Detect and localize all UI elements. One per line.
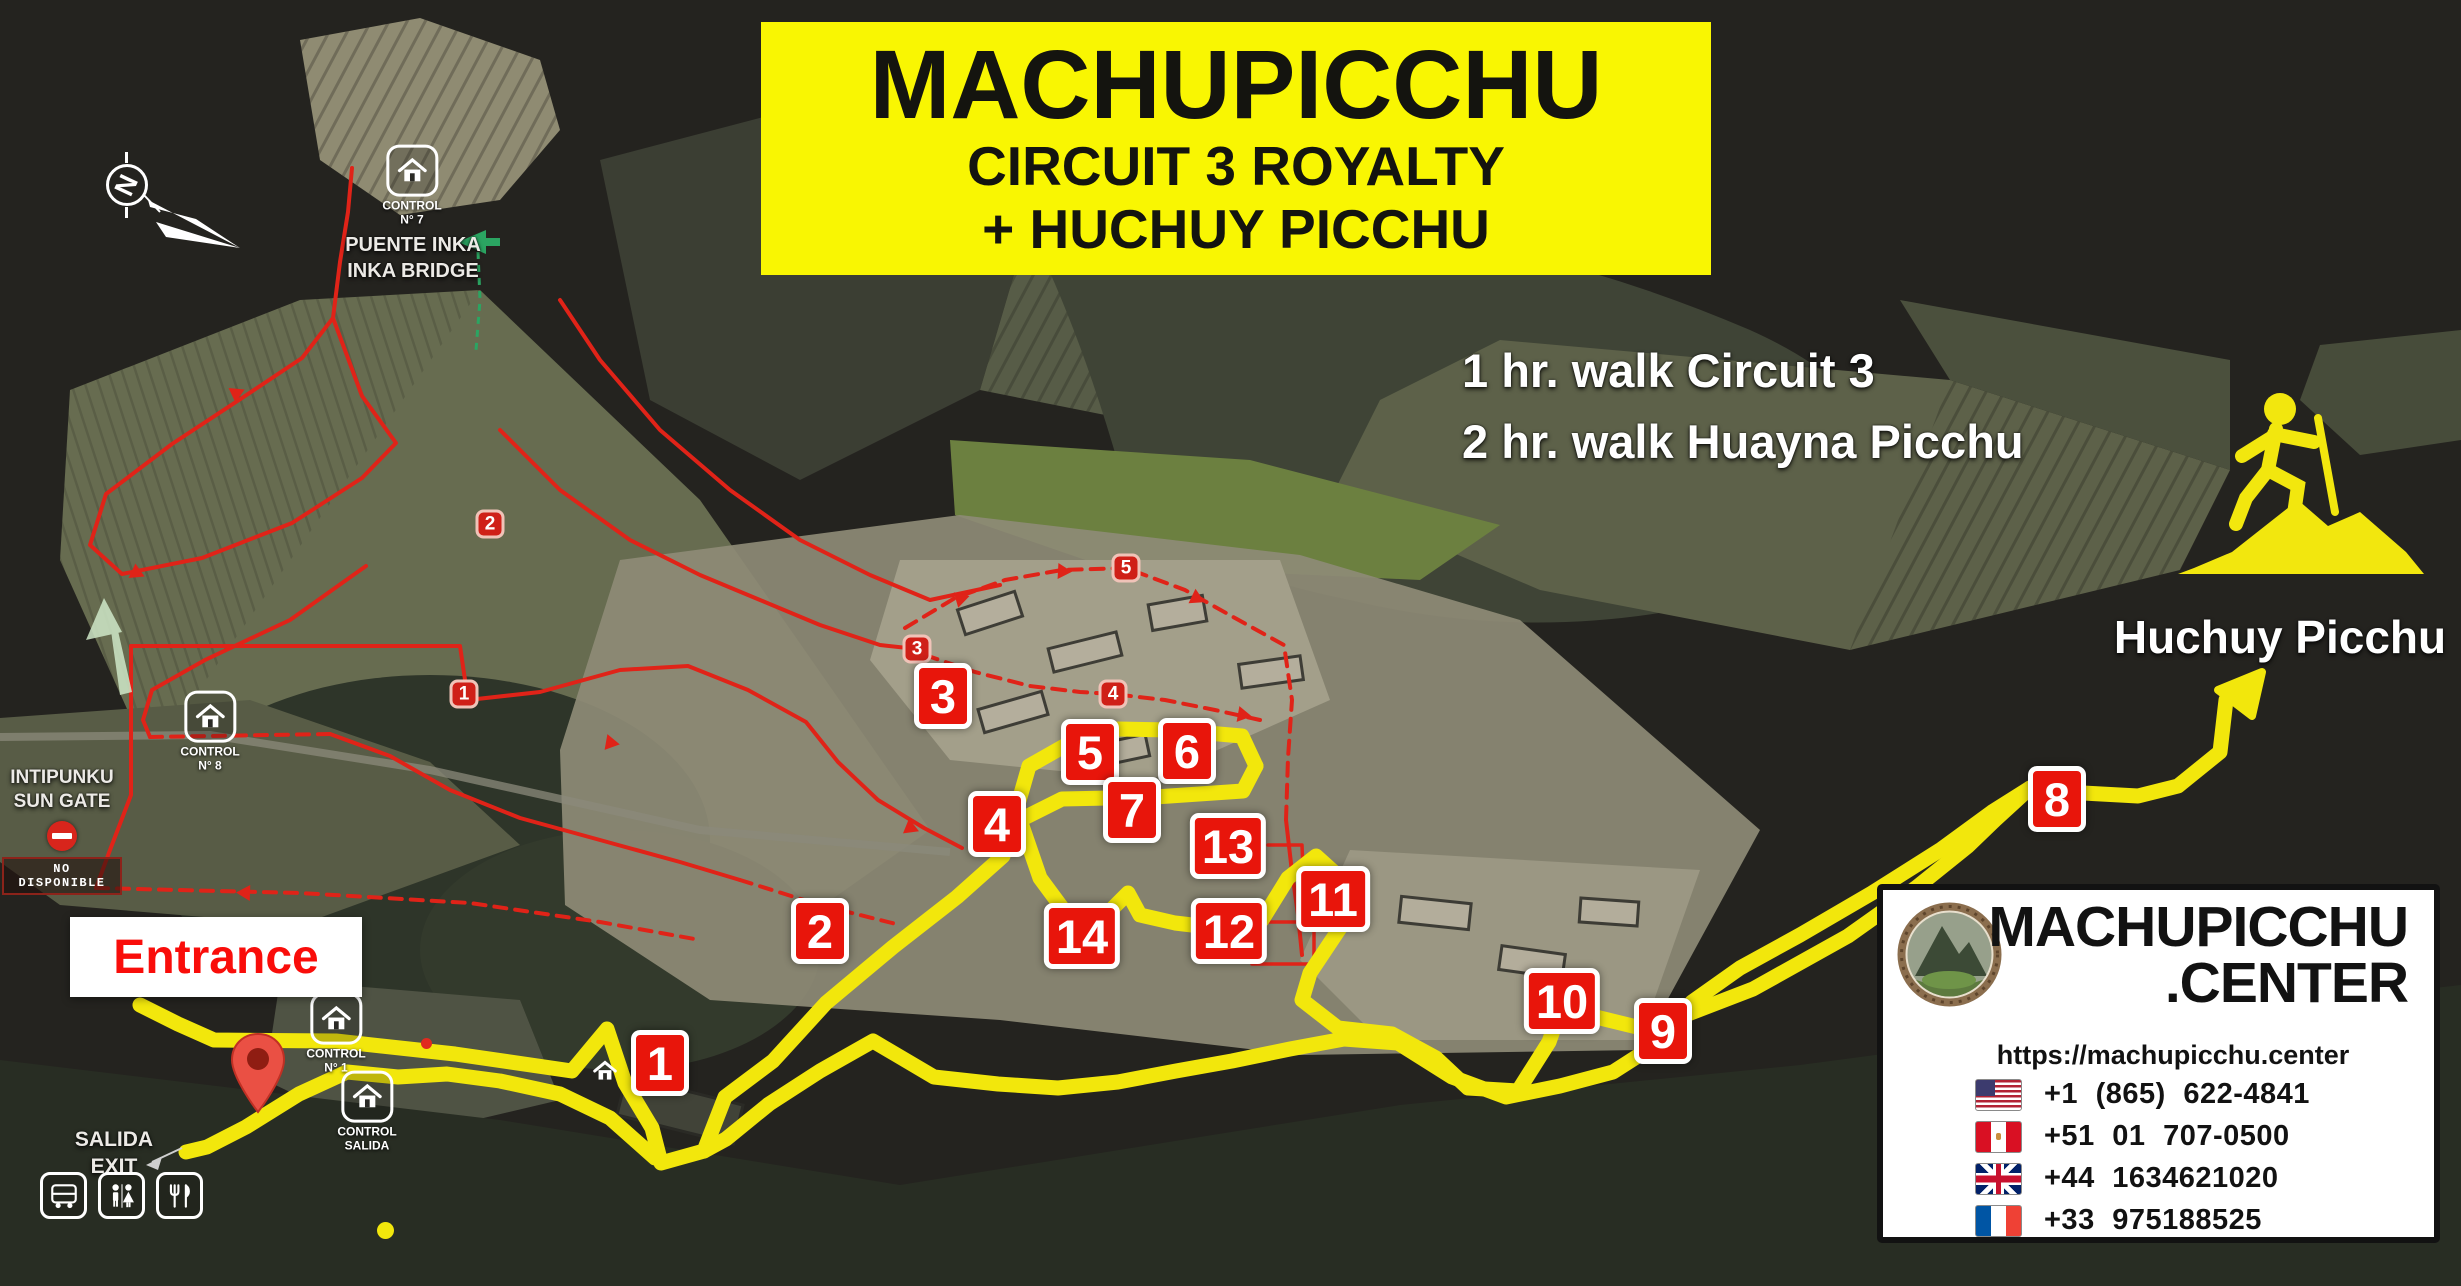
route-marker-5: 5 (1061, 719, 1119, 785)
france-flag-icon (1975, 1205, 2022, 1237)
phone-number-uk: +44 1634621020 (2044, 1162, 2279, 1195)
red-dot (421, 1038, 432, 1049)
brand-line2: .CENTER (1988, 956, 2408, 1012)
house-icon (592, 1059, 618, 1083)
phone-row-us: +1 (865) 622-4841 (1975, 1078, 2310, 1111)
control-number: N° 8 (198, 759, 221, 773)
inka-bridge-label-es: PUENTE INKA (318, 232, 508, 258)
machu-picchu-circuit-map: MACHUPICCHU CIRCUIT 3 ROYALTY + HUCHUY P… (0, 0, 2461, 1286)
phone-row-uk: +44 1634621020 (1975, 1162, 2310, 1195)
uk-flag-icon (1975, 1163, 2022, 1195)
brand-line1: MACHUPICCHU (1988, 900, 2408, 956)
website-url: https://machupicchu.center (1953, 1040, 2393, 1071)
huchuy-picchu-label: Huchuy Picchu (2100, 610, 2460, 664)
restaurant-icon (156, 1172, 203, 1219)
route-marker-2: 2 (791, 898, 849, 964)
house-icon (184, 691, 236, 743)
route-marker-9: 9 (1634, 998, 1692, 1064)
walk-line-circuit3: 1 hr. walk Circuit 3 (1462, 336, 2024, 407)
route-marker-12: 12 (1191, 898, 1267, 964)
peru-flag-icon (1975, 1121, 2022, 1153)
control-number: N° 7 (400, 213, 423, 227)
map-title: MACHUPICCHU (870, 36, 1603, 135)
no-entry-icon (47, 821, 77, 851)
entrance-label-box: Entrance (70, 917, 362, 997)
route-marker-4: 4 (968, 791, 1026, 857)
contact-card: MACHUPICCHU .CENTER https://machupicchu.… (1877, 884, 2440, 1243)
map-title-box: MACHUPICCHU CIRCUIT 3 ROYALTY + HUCHUY P… (761, 22, 1711, 275)
sun-gate-label-en: SUN GATE (2, 790, 122, 814)
route-marker-6: 6 (1158, 718, 1216, 784)
circuit-area-marker-4: 4 (1099, 680, 1128, 709)
entrance-label: Entrance (113, 930, 318, 985)
route-marker-8: 8 (2028, 766, 2086, 832)
walk-line-huayna: 2 hr. walk Huayna Picchu (1462, 407, 2024, 478)
phone-number-france: +33 975188525 (2044, 1204, 2262, 1237)
restroom-icon (98, 1172, 145, 1219)
exit-sign-salida: SALIDA (58, 1126, 170, 1153)
house-icon (386, 145, 438, 197)
circuit-area-marker-5: 5 (1112, 554, 1141, 583)
route-marker-7: 7 (1103, 777, 1161, 843)
walk-duration-info: 1 hr. walk Circuit 3 2 hr. walk Huayna P… (1462, 336, 2024, 477)
route-marker-13: 13 (1190, 813, 1266, 879)
circuit-area-marker-3: 3 (903, 635, 932, 664)
machupicchu-center-logo (1897, 902, 2002, 1007)
map-pin-icon (228, 1032, 288, 1116)
control-label: CONTROL (382, 199, 441, 213)
route-marker-11: 11 (1296, 866, 1370, 932)
brand-wordmark: MACHUPICCHU .CENTER (1988, 900, 2408, 1012)
compass-tick-bottom (125, 207, 128, 218)
yellow-dot (377, 1222, 394, 1239)
route-marker-10: 10 (1524, 968, 1600, 1034)
inka-bridge-label: PUENTE INKA INKA BRIDGE (318, 232, 508, 284)
house-icon (341, 1071, 393, 1123)
bus-icon (40, 1172, 87, 1219)
amenities-row (40, 1172, 203, 1219)
control-salida-checkpoint: CONTROLSALIDA (337, 1071, 396, 1154)
control-label: CONTROL (306, 1047, 365, 1061)
route-marker-14: 14 (1044, 903, 1120, 969)
phone-list: +1 (865) 622-4841 +51 01 707-0500 +44 16… (1975, 1078, 2310, 1237)
inka-bridge-label-en: INKA BRIDGE (318, 258, 508, 284)
us-flag-icon (1975, 1079, 2022, 1111)
phone-number-us: +1 (865) 622-4841 (2044, 1078, 2310, 1111)
route-marker-1: 1 (631, 1030, 689, 1096)
control-1-checkpoint: CONTROLN° 1 (306, 993, 365, 1076)
control-7-checkpoint: CONTROLN° 7 (382, 145, 441, 228)
sun-gate-group: INTIPUNKU SUN GATE NO DISPONIBLE (2, 766, 122, 895)
phone-number-peru: +51 01 707-0500 (2044, 1120, 2290, 1153)
compass-north-label: N (109, 170, 145, 201)
phone-row-peru: +51 01 707-0500 (1975, 1120, 2310, 1153)
map-subtitle-circuit: CIRCUIT 3 ROYALTY (967, 135, 1505, 198)
control-label: CONTROL (180, 745, 239, 759)
control-number: SALIDA (345, 1139, 390, 1153)
control-8-checkpoint: CONTROLN° 8 (180, 691, 239, 774)
sun-gate-label-es: INTIPUNKU (2, 766, 122, 790)
compass-tick-top (125, 152, 128, 163)
circuit-area-marker-2: 2 (476, 510, 505, 539)
compass-icon: N (106, 164, 148, 206)
house-icon (310, 993, 362, 1045)
control-label: CONTROL (337, 1125, 396, 1139)
phone-row-france: +33 975188525 (1975, 1204, 2310, 1237)
map-subtitle-huchuy: + HUCHUY PICCHU (982, 198, 1490, 261)
not-available-badge: NO DISPONIBLE (2, 857, 122, 895)
hiker-mountain-icon (2168, 382, 2434, 582)
route-marker-3: 3 (914, 663, 972, 729)
circuit-area-marker-1: 1 (450, 680, 479, 709)
